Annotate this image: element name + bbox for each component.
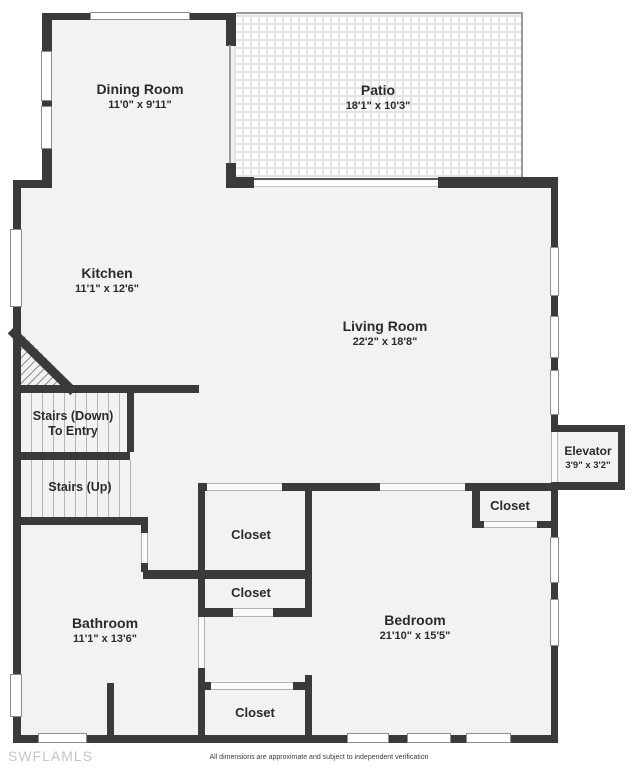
window — [90, 12, 190, 20]
disclaimer-text: All dimensions are approximate and subje… — [0, 754, 638, 761]
elevator-label: Elevator3'9" x 3'2" — [555, 444, 621, 472]
dining-room-label: Dining Room11'0" x 9'11" — [60, 80, 220, 112]
wall-segment — [438, 177, 558, 188]
hall-closet-lower-door — [233, 608, 273, 617]
wall-segment — [472, 521, 484, 528]
wall-segment — [141, 525, 148, 533]
wall-segment — [107, 683, 114, 735]
wall-segment — [510, 735, 558, 743]
bedroom-hall-door — [198, 617, 205, 668]
bathroom-door — [141, 533, 148, 563]
wall-segment — [551, 295, 558, 317]
wall-segment — [551, 425, 625, 432]
patio-edge-top — [236, 12, 523, 14]
bottom-closet-door — [211, 682, 293, 690]
hall-closet-lower-label: Closet — [201, 585, 301, 602]
wall-segment — [86, 735, 198, 743]
wall-segment — [273, 608, 312, 617]
patio-edge-right — [521, 12, 523, 178]
living-room-label: Living Room22'2" x 18'8" — [305, 317, 465, 349]
window — [10, 674, 22, 717]
window — [550, 599, 559, 646]
window — [41, 106, 52, 149]
bedroom-entry-opening — [380, 483, 465, 491]
wall-segment — [13, 735, 41, 743]
wall-segment — [537, 521, 558, 528]
wall-segment — [551, 582, 558, 600]
hall-closet-upper-label: Closet — [201, 527, 301, 544]
patio-screen-line — [229, 45, 231, 165]
wall-segment — [282, 483, 380, 491]
stairs-down-label: Stairs (Down)To Entry — [16, 409, 130, 439]
window — [550, 316, 559, 358]
wall-segment — [388, 735, 409, 743]
wall-segment — [226, 13, 236, 46]
wall-segment — [13, 188, 21, 231]
window — [38, 733, 87, 743]
wall-segment — [13, 180, 52, 188]
window — [407, 733, 451, 743]
wall-segment — [13, 305, 21, 330]
wall-segment — [305, 483, 312, 617]
wall-segment — [13, 385, 199, 393]
window — [550, 370, 559, 415]
window — [41, 51, 52, 101]
wall-segment — [198, 735, 348, 743]
patio-slider-door — [254, 178, 438, 187]
wall-segment — [551, 645, 558, 743]
window — [466, 733, 511, 743]
stairs-up-label: Stairs (Up) — [18, 480, 142, 495]
wall-segment — [42, 13, 52, 53]
window — [550, 247, 559, 296]
floor-plan: Dining Room11'0" x 9'11" Patio18'1" x 10… — [0, 0, 638, 768]
window — [347, 733, 389, 743]
patio-label: Patio18'1" x 10'3" — [298, 81, 458, 113]
wall-segment — [226, 177, 254, 188]
wall-segment — [198, 608, 233, 617]
wall-segment — [13, 517, 148, 525]
wall-segment — [305, 675, 312, 743]
wall-segment — [198, 682, 211, 690]
wall-segment — [143, 570, 310, 579]
kitchen-label: Kitchen11'1" x 12'6" — [27, 264, 187, 296]
bathroom-label: Bathroom11'1" x 13'6" — [25, 614, 185, 646]
wall-segment — [551, 357, 558, 371]
wall-segment — [465, 483, 558, 491]
window — [10, 229, 22, 307]
window — [550, 537, 559, 583]
hall-closet-upper-door — [207, 483, 282, 491]
wall-segment — [198, 668, 205, 743]
wall-segment — [551, 188, 558, 248]
wall-segment — [13, 330, 21, 675]
bedroom-right-closet-door — [484, 521, 537, 528]
bedroom-bottom-closet-label: Closet — [205, 705, 305, 722]
bedroom-right-closet-label: Closet — [460, 498, 560, 515]
bedroom-label: Bedroom21'10" x 15'5" — [335, 611, 495, 643]
wall-segment — [13, 452, 130, 460]
wall-segment — [551, 482, 625, 490]
